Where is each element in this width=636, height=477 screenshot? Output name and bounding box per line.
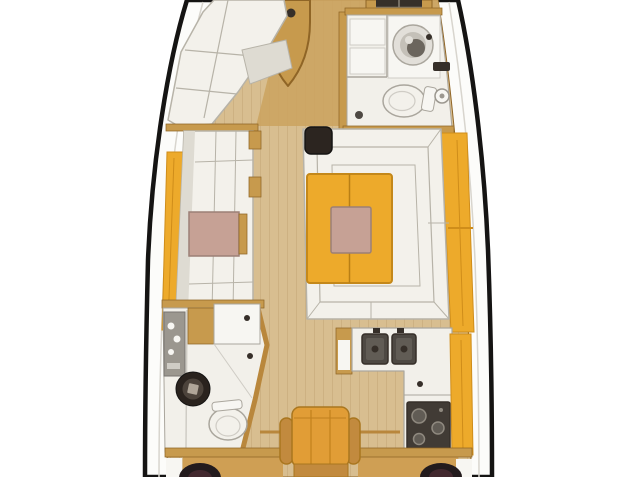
toilet-icon xyxy=(209,408,247,440)
stove-burner xyxy=(414,434,425,445)
settee-armrest xyxy=(249,131,261,149)
seat-backrest xyxy=(292,407,349,467)
seat-cushion xyxy=(294,464,348,477)
shower-soap-shelf xyxy=(167,363,180,369)
fridge-handle-icon xyxy=(417,381,423,387)
settee-armrest xyxy=(249,177,261,197)
locker-handle-icon xyxy=(244,315,250,321)
shower-drain-icon xyxy=(355,111,363,119)
head-wall-top xyxy=(345,8,442,15)
aft-ledge-starboard xyxy=(358,448,472,457)
shower-bench-panel xyxy=(350,19,385,45)
side-table xyxy=(189,212,239,256)
locker-knob-icon xyxy=(287,9,296,18)
mast-post-icon xyxy=(305,127,332,154)
forward-bulkhead xyxy=(166,124,258,131)
shower-knob-icon xyxy=(168,349,174,355)
shower-knob-icon xyxy=(168,323,175,330)
washbasin-highlight xyxy=(405,36,413,44)
table-inset xyxy=(331,207,371,253)
seat-armrest-left xyxy=(280,418,293,464)
stove-knob xyxy=(439,408,443,412)
sink-drain-icon xyxy=(401,346,408,353)
forward-head xyxy=(339,8,454,134)
aft-head-cabinet xyxy=(188,308,214,344)
stove-burner xyxy=(412,409,426,423)
door-handle-icon xyxy=(433,62,450,71)
faucet-icon xyxy=(426,34,432,40)
saloon-starboard xyxy=(303,127,474,332)
aft-ledge-port xyxy=(165,448,282,457)
washbasin-drain xyxy=(187,383,199,395)
aft-panel-sliver xyxy=(166,458,182,477)
sink-drain-icon xyxy=(372,346,379,353)
aft-head-counter xyxy=(214,304,260,344)
faucet-icon xyxy=(373,328,380,333)
shower-bench-panel xyxy=(350,48,385,74)
faucet-icon xyxy=(397,328,404,333)
galley-cabinet-face xyxy=(338,340,350,370)
side-table-edge xyxy=(239,214,247,254)
stove-burner xyxy=(432,422,444,434)
shower-knob-icon xyxy=(174,336,181,343)
floor-plan-svg xyxy=(0,0,636,477)
locker-handle-icon xyxy=(247,353,253,359)
porthole-center xyxy=(440,94,445,99)
head-wall-left xyxy=(339,12,347,132)
floor-plan-canvas xyxy=(0,0,636,477)
